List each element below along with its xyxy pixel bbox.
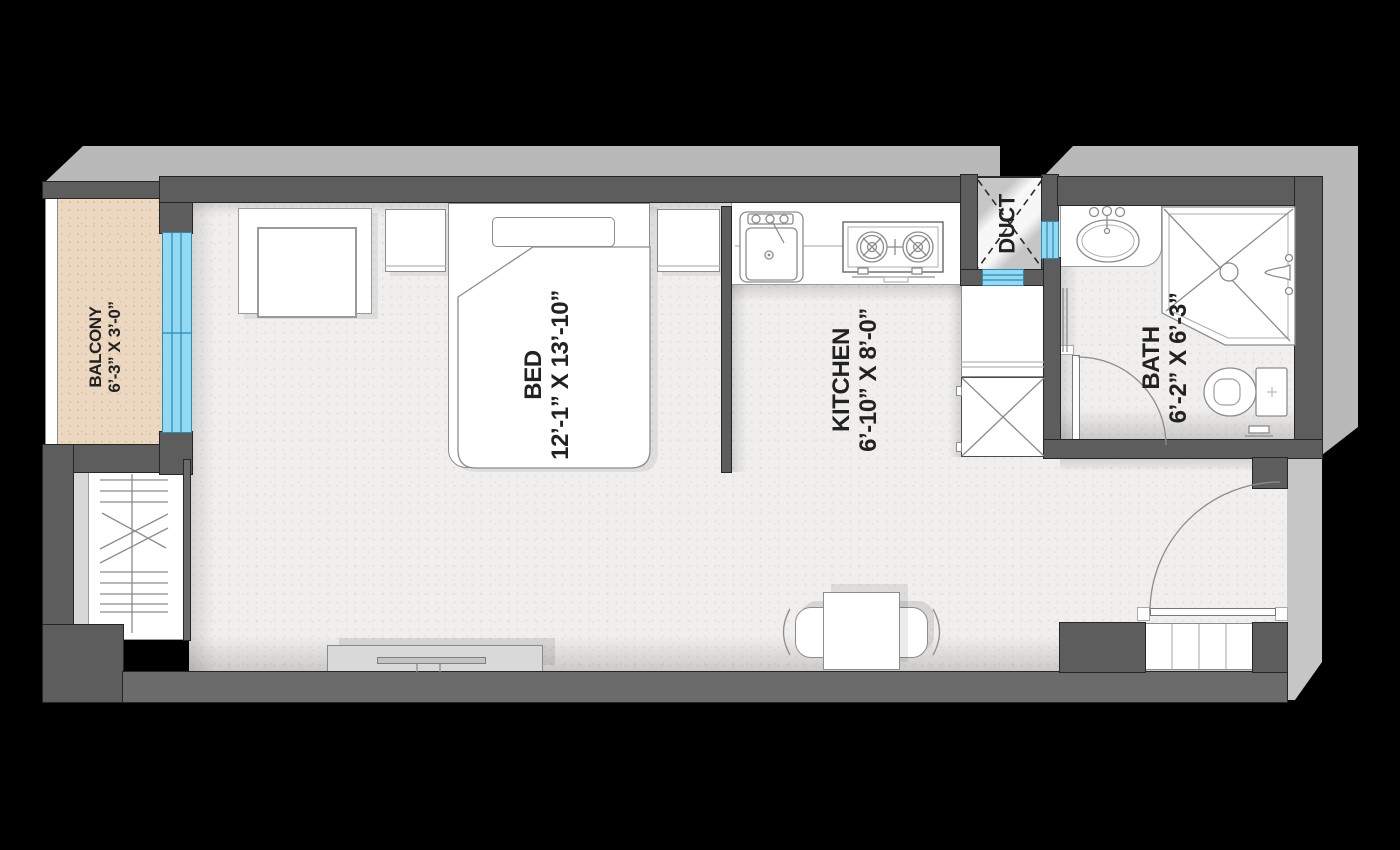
bath-label: BATH 6’-2” X 6’-3” <box>1139 293 1193 424</box>
wall-left <box>43 445 73 630</box>
wall-entry-block <box>1253 458 1287 488</box>
balcony-label-name: BALCONY <box>86 301 105 392</box>
wall-bath-left <box>1044 258 1060 458</box>
kitchen-label-dims: 6’-10” X 8’-0” <box>856 308 883 452</box>
wall-duct-left <box>961 175 977 270</box>
wall-wardrobe-divider <box>184 460 190 640</box>
wall-entry-left-block <box>1060 623 1145 672</box>
balcony-label-dims: 6’-3” X 3’-0” <box>105 301 124 392</box>
duct-kitchen-window <box>983 270 1023 285</box>
wall-bath-right <box>1295 177 1322 458</box>
fridge <box>961 377 1045 457</box>
balcony-railing <box>45 198 58 445</box>
bed-label: BED 12’-1” X 13’-10” <box>521 290 575 460</box>
balcony-sliding-door <box>163 233 191 432</box>
tv <box>377 657 486 664</box>
bath-door-panel <box>1072 355 1080 445</box>
wall-bottom <box>123 672 1287 702</box>
balcony-label: BALCONY 6’-3” X 3’-0” <box>86 301 124 392</box>
floor-plan: BALCONY 6’-3” X 3’-0” BED 12’-1” X 13’-1… <box>0 0 1400 850</box>
bed-pillow <box>492 217 615 247</box>
sofa-table <box>257 227 357 318</box>
entry-door-jamb-left <box>1137 607 1150 621</box>
nightstand-left <box>385 209 446 272</box>
wall-duct-bottom-right <box>1023 270 1043 285</box>
wall-balcony-top <box>43 182 163 198</box>
wardrobe <box>88 470 186 640</box>
entry-door-panel <box>1150 608 1276 616</box>
wall-entry-right-block <box>1253 623 1287 672</box>
bath-door-jamb-top <box>1060 345 1074 355</box>
wall-duct-right <box>1042 175 1058 222</box>
bed-label-name: BED <box>521 290 548 460</box>
wall-corner-bottom-left <box>43 625 123 702</box>
kitchen-label-name: KITCHEN <box>829 308 856 452</box>
kitchen-counter <box>731 202 963 285</box>
extrusion-entry-right <box>1287 458 1322 700</box>
entry-door-jamb-right <box>1275 607 1288 621</box>
wall-bath-bottom <box>1044 440 1322 458</box>
fridge-hinge-top <box>956 386 962 396</box>
kitchen-label: KITCHEN 6’-10” X 8’-0” <box>829 308 883 452</box>
duct-label: DUCT <box>996 194 1021 254</box>
wall-bath-top <box>1058 177 1322 205</box>
shoe-cabinet <box>1145 623 1253 670</box>
bath-label-dims: 6’-2” X 6’-3” <box>1166 293 1193 424</box>
wall-duct-bottom-left <box>961 270 983 285</box>
wall-top-main <box>160 177 963 202</box>
wall-partition-bed-kitchen <box>722 207 731 472</box>
bath-label-name: BATH <box>1139 293 1166 424</box>
dining-table <box>823 592 900 670</box>
bath-vanity <box>1060 205 1162 267</box>
bed-label-dims: 12’-1” X 13’-10” <box>548 290 575 460</box>
duct-bath-window <box>1042 222 1058 258</box>
duct-label-name: DUCT <box>996 194 1021 254</box>
fridge-hinge-bottom <box>956 442 962 452</box>
nightstand-right <box>657 209 720 272</box>
kitchen-cabinet <box>961 285 1044 377</box>
